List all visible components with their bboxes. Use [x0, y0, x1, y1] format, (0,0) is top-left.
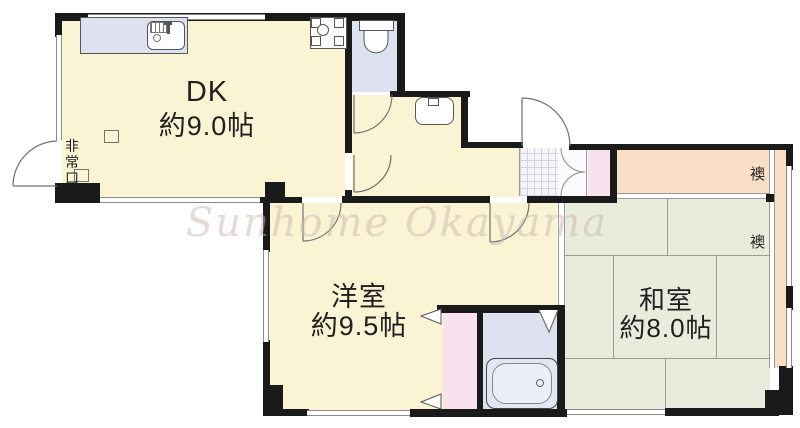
stove-knob	[317, 24, 329, 36]
stove-burner	[311, 36, 321, 46]
room-washitsu-size: 約8.0帖	[619, 308, 712, 345]
sliding-door-marker	[421, 309, 441, 324]
fusuma-label-lower: 襖	[750, 231, 766, 252]
stove-burner	[334, 18, 344, 28]
sliding-door-marker	[421, 394, 441, 409]
stove-burner	[334, 36, 344, 46]
sink-drain	[153, 34, 161, 42]
toilet-tank	[359, 20, 394, 31]
floor-plan: DK 約9.0帖 洋室 約9.5帖 和室 約8.0帖 非常口 襖 襖 Sunho…	[0, 0, 800, 428]
bathroom-folding-door	[539, 310, 558, 332]
shoe-cabinet-doors	[561, 148, 585, 196]
emergency-exit-door	[13, 141, 57, 186]
kitchen-faucet-icon	[167, 24, 170, 34]
fusuma-label-upper: 襖	[750, 163, 766, 184]
toilet-door	[354, 95, 392, 133]
dk-hall-door	[354, 155, 391, 192]
front-entrance-door	[522, 98, 570, 146]
watermark: Sunhome Okayama	[186, 200, 608, 246]
room-dk-size: 約9.0帖	[159, 104, 256, 143]
washbasin-faucet-icon	[428, 98, 439, 106]
kitchen-faucet-head	[164, 22, 172, 25]
room-yoshitsu-size: 約9.5帖	[311, 304, 408, 343]
emergency-exit-label: 非常口	[65, 138, 81, 186]
toilet-bowl	[364, 29, 388, 53]
bathtub-drain	[536, 379, 544, 387]
